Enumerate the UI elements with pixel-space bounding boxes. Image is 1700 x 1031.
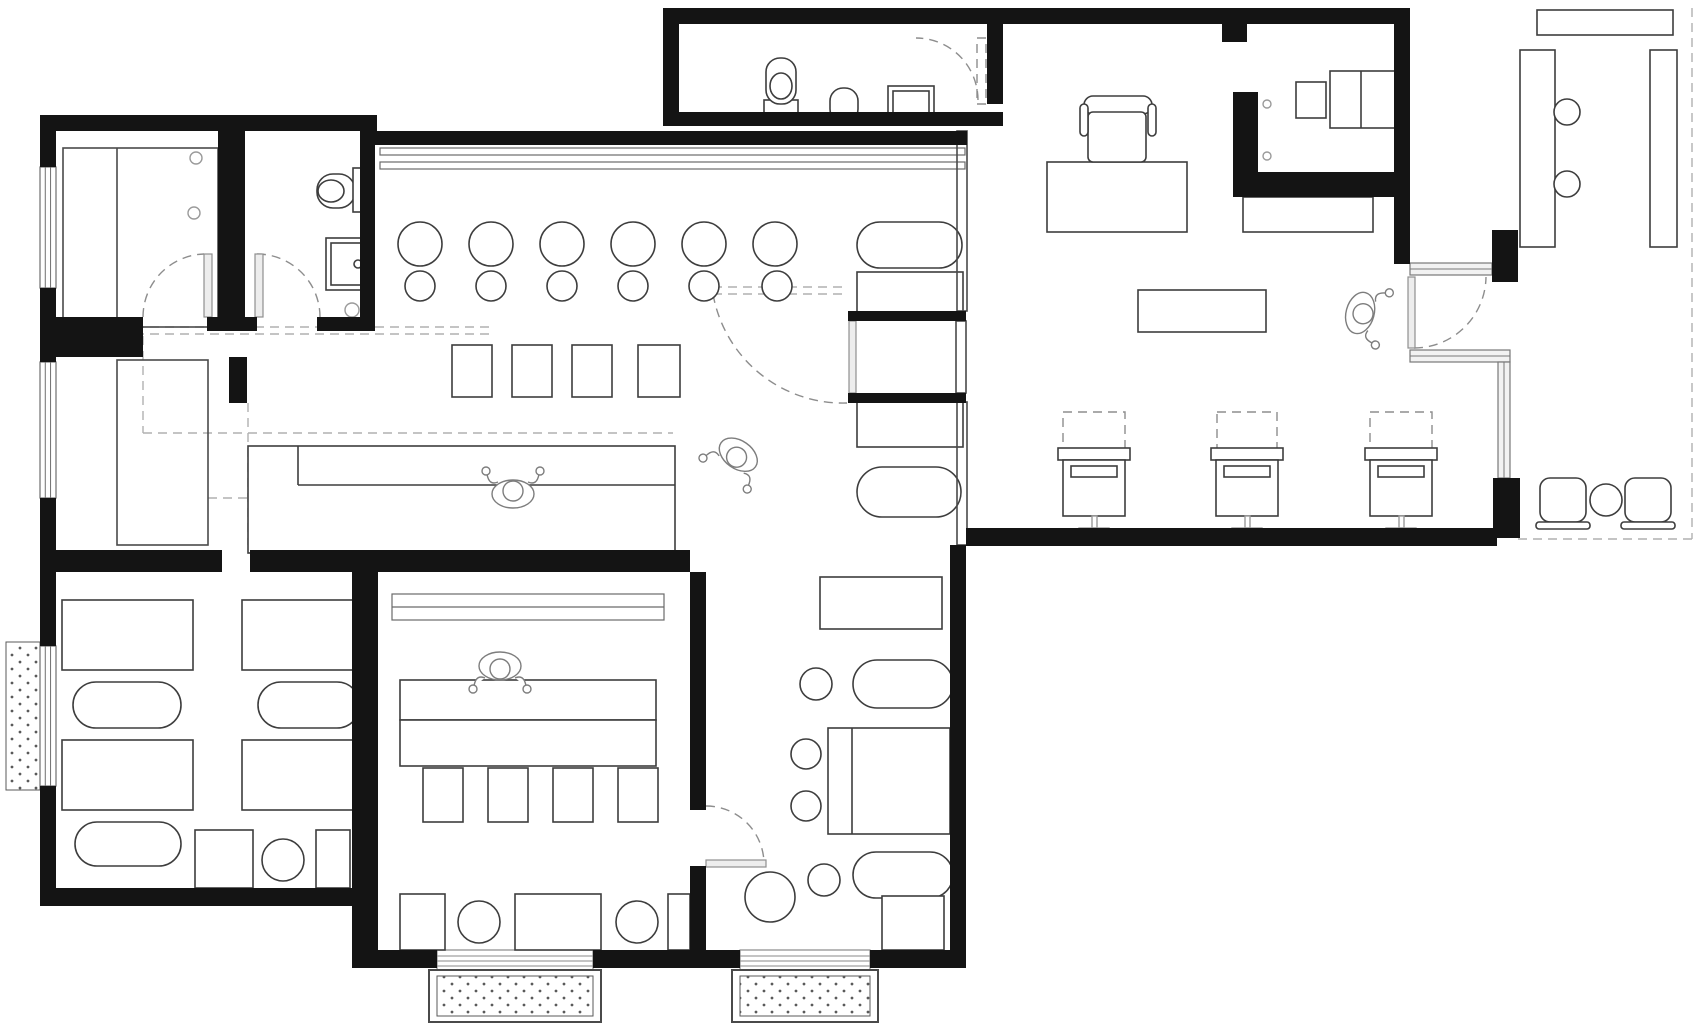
wall-segment-11 [225,317,257,331]
furniture-layer [62,10,1677,950]
bar-square-stool-1 [452,345,492,397]
spa-stool-3 [791,791,821,821]
person-salon-customer-part-3 [1384,288,1394,298]
workshop-stool-2 [488,768,528,822]
wall-segment-34 [1493,478,1520,538]
wall-segment-32 [1394,24,1410,264]
station-2-chair-cushion [1224,466,1270,477]
window-planter [6,642,40,790]
window-left-top [40,167,56,288]
wall-segment-25 [950,545,966,968]
wall-segment-35 [966,528,1497,546]
entry-door-leaf [1408,277,1415,348]
workshop-cabinet-1 [400,894,445,950]
cafe-stool-4 [618,271,648,301]
station-3-chair-cushion [1378,466,1424,477]
wall-segment-29 [663,8,679,118]
person-corridor [697,425,771,494]
terrace-chair-1 [1540,478,1586,522]
wall-segment-24 [690,866,706,968]
cafe-table-2 [469,222,513,266]
wall-segment-16 [250,550,690,572]
workshop-cabinet-3 [668,894,690,950]
bar-back-counter-2 [380,162,965,169]
wall-segment-15 [40,550,222,572]
room-b-door-leaf [255,254,263,317]
spa-lounger-1 [853,660,953,708]
terrace-chair-2 [1625,478,1671,522]
station-2-chair-stem [1245,516,1250,528]
wall-segment-10 [207,317,218,331]
person-corridor-part-1 [739,472,753,486]
desk-chair-arm-right [1148,104,1156,136]
window-left-bottom [40,646,56,786]
wall-hook-2 [1263,152,1271,160]
wall-hook-1 [1263,100,1271,108]
lounge-bench-lower [857,467,961,517]
wall-segment-5 [40,115,377,131]
spa-cabinet-top [820,577,942,629]
workshop-stool-4 [618,768,658,822]
wall-segment-18 [40,888,370,906]
wall-segment-7 [218,131,245,331]
lounge-cabinet-lower [857,402,963,447]
treatment-closet [1243,197,1373,232]
wall-segment-12 [317,317,375,331]
pillow-a1 [73,682,181,728]
person-workshop-part-3 [523,685,531,693]
terrace-chair-1-base [1536,522,1590,529]
station-1-chair-back [1058,448,1130,460]
workshop-door-leaf [706,860,766,867]
wall-segment-6 [375,131,967,145]
terrace-counter-stool-1 [1554,99,1580,125]
desk-chair-seat [1088,112,1146,162]
doormat-2 [740,976,870,1016]
lounge-cabinet-upper [857,272,963,312]
person-barista-part-6 [503,481,523,501]
person-corridor-part-3 [742,483,753,494]
wall-segment-38 [1222,24,1247,42]
windows-layer [40,167,56,786]
bar-square-stool-2 [512,345,552,397]
terrace-chair-2-base [1621,522,1675,529]
desk-chair-arm-left [1080,104,1088,136]
pillow-b1 [258,682,360,728]
cafe-stool-6 [762,271,792,301]
room-a-door-arc [143,254,204,317]
spa-stool-2 [791,739,821,769]
terrace-planter-top [1537,10,1673,35]
room-b-toilet-seat [318,180,344,202]
vestibule-right-jamb [956,321,966,393]
workshop-basin-2 [616,901,658,943]
wall-segment-19 [378,950,437,968]
wall-segment-27 [848,393,966,403]
wall-segment-33 [1492,230,1518,282]
floor-plan-canvas [0,0,1700,1031]
storage-cabinet [117,360,208,545]
wall-segment-17 [352,572,378,968]
entrance-threshold-2 [740,950,870,970]
station-1-chair-cushion [1071,466,1117,477]
lounge-bench-upper [857,222,962,268]
treatment-bed [1330,71,1402,128]
wall-segment-30 [663,112,1003,126]
vestibule-door-arc [713,294,847,403]
bedroom-cabinet-1 [195,830,253,888]
cafe-stool-5 [689,271,719,301]
spa-plant [745,872,795,922]
terrace-counter-stool-2 [1554,171,1580,197]
window-left-middle [40,362,56,498]
person-corridor-part-2 [706,449,720,463]
cafe-table-6 [753,222,797,266]
workshop-door-arc [706,806,764,864]
entry-door-arc [1414,277,1486,348]
workshop-basin-1 [458,901,500,943]
bar-square-stool-4 [638,345,680,397]
wall-segment-31 [987,24,1003,104]
person-salon-customer-part-1 [1375,291,1387,304]
station-2-chair-back [1211,448,1283,460]
cafe-stool-3 [547,271,577,301]
person-workshop-part-4 [469,685,477,693]
cafe-table-4 [611,222,655,266]
wall-segment-26 [848,311,966,321]
wall-segment-2 [40,288,56,362]
reception-desk [1047,162,1187,232]
room-a-marker-1 [190,152,202,164]
spa-stool-1 [800,668,832,700]
room-a-door-leaf [204,254,212,317]
bar-counter [248,446,675,553]
cafe-stool-2 [476,271,506,301]
bar-square-stool-3 [572,345,612,397]
person-workshop-part-6 [490,659,510,679]
bed-a2 [62,740,193,810]
wall-segment-13 [56,328,143,357]
bed-a1 [62,600,193,670]
bar-back-counter-1 [380,148,965,155]
spa-bed [828,728,950,834]
room-b-floor-drain [345,303,359,317]
wall-segment-8 [360,131,375,331]
spa-stool-4 [808,864,840,896]
wall-segment-37 [1258,172,1410,197]
terrace-planter-right [1650,50,1677,247]
terrace-counter [1520,50,1555,247]
bedroom-basin [262,839,304,881]
spa-cabinet-bottom [882,896,944,950]
vestibule-glass-door [849,321,856,393]
entrance-threshold-1 [437,950,593,970]
cafe-table-5 [682,222,726,266]
workshop-cabinet-2 [515,894,601,950]
station-1-chair-stem [1092,516,1097,528]
workshop-stool-3 [553,768,593,822]
station-3-chair-back [1365,448,1437,460]
wall-segment-23 [690,572,706,810]
coffee-table [1138,290,1266,332]
room-a-marker-2 [188,207,200,219]
workshop-stool-1 [423,768,463,822]
wall-segment-36 [1233,92,1258,197]
wall-segment-28 [663,8,1410,24]
person-barista-part-3 [482,467,490,475]
cafe-table-3 [540,222,584,266]
cafe-table-1 [398,222,442,266]
person-barista-part-4 [536,467,544,475]
wall-segment-20 [593,950,690,968]
station-3-chair-stem [1399,516,1404,528]
pillow-a2 [75,822,181,866]
wc-top-toilet-seat [770,73,792,99]
treatment-side-table [1296,82,1326,118]
terrace-table [1590,484,1622,516]
bedroom-cabinet-2 [316,830,350,888]
room-b-door-arc [257,254,320,317]
floor-plan-svg [0,0,1700,1031]
spa-lounger-2 [853,852,953,898]
worktable-lower [400,720,656,766]
cafe-stool-1 [405,271,435,301]
person-salon-customer [1339,279,1395,349]
room-a-inner-outline [63,148,218,327]
wall-segment-14 [229,357,247,403]
doormat-1 [437,976,593,1016]
